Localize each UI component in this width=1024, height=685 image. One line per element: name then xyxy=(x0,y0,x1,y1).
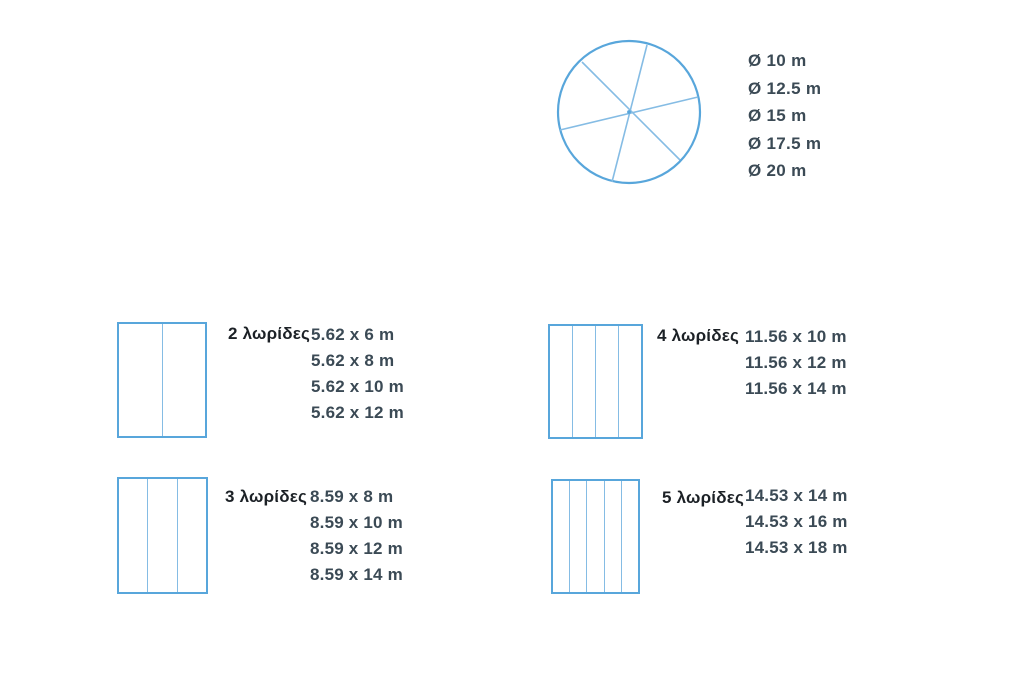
size-value: 8.59 x 14 m xyxy=(310,562,403,588)
strip-rectangle xyxy=(551,479,640,594)
strip-count-label: 5 λωρίδες xyxy=(662,488,744,508)
size-value: 8.59 x 12 m xyxy=(310,536,403,562)
strip-cell xyxy=(595,326,618,437)
strip-cell xyxy=(177,479,206,592)
strip-group-5: 5 λωρίδες 14.53 x 14 m14.53 x 16 m14.53 … xyxy=(551,479,640,594)
size-value: 5.62 x 12 m xyxy=(311,400,404,426)
strip-cell xyxy=(572,326,595,437)
diagram-canvas: Ø 10 mØ 12.5 mØ 15 mØ 17.5 mØ 20 m 2 λωρ… xyxy=(0,0,1024,685)
size-value: 8.59 x 10 m xyxy=(310,510,403,536)
diameter-value: Ø 17.5 m xyxy=(748,130,821,158)
diameter-value: Ø 10 m xyxy=(748,47,821,75)
strip-rectangle xyxy=(117,477,208,594)
strip-cell xyxy=(621,481,638,592)
size-list: 14.53 x 14 m14.53 x 16 m14.53 x 18 m xyxy=(745,483,848,561)
strip-count-label: 4 λωρίδες xyxy=(657,326,739,346)
strip-rectangle xyxy=(548,324,643,439)
strip-group-4: 4 λωρίδες 11.56 x 10 m11.56 x 12 m11.56 … xyxy=(548,324,643,439)
strip-cell xyxy=(569,481,586,592)
strip-cell xyxy=(553,481,569,592)
diameter-value: Ø 20 m xyxy=(748,157,821,185)
strip-count-label: 3 λωρίδες xyxy=(225,487,307,507)
size-value: 8.59 x 8 m xyxy=(310,484,403,510)
circle-chord xyxy=(582,62,680,160)
strip-cell xyxy=(586,481,603,592)
strip-count-label: 2 λωρίδες xyxy=(228,324,310,344)
strip-group-2: 2 λωρίδες 5.62 x 6 m5.62 x 8 m5.62 x 10 … xyxy=(117,322,207,438)
diameter-value: Ø 12.5 m xyxy=(748,75,821,103)
size-value: 14.53 x 14 m xyxy=(745,483,848,509)
size-value: 5.62 x 6 m xyxy=(311,322,404,348)
diameter-value: Ø 15 m xyxy=(748,102,821,130)
size-value: 14.53 x 18 m xyxy=(745,535,848,561)
size-value: 11.56 x 10 m xyxy=(745,324,847,350)
size-value: 11.56 x 12 m xyxy=(745,350,847,376)
size-list: 5.62 x 6 m5.62 x 8 m5.62 x 10 m5.62 x 12… xyxy=(311,322,404,426)
strip-cell xyxy=(119,479,147,592)
strip-cell xyxy=(618,326,641,437)
size-list: 8.59 x 8 m8.59 x 10 m8.59 x 12 m8.59 x 1… xyxy=(310,484,403,588)
size-list: 11.56 x 10 m11.56 x 12 m11.56 x 14 m xyxy=(745,324,847,402)
size-value: 5.62 x 8 m xyxy=(311,348,404,374)
size-value: 11.56 x 14 m xyxy=(745,376,847,402)
size-value: 14.53 x 16 m xyxy=(745,509,848,535)
strip-cell xyxy=(550,326,572,437)
strip-cell xyxy=(147,479,176,592)
strip-cell xyxy=(119,324,162,436)
strip-cell xyxy=(162,324,206,436)
diameter-list: Ø 10 mØ 12.5 mØ 15 mØ 17.5 mØ 20 m xyxy=(748,47,821,185)
strip-rectangle xyxy=(117,322,207,438)
size-value: 5.62 x 10 m xyxy=(311,374,404,400)
strip-group-3: 3 λωρίδες 8.59 x 8 m8.59 x 10 m8.59 x 12… xyxy=(117,477,208,594)
strip-cell xyxy=(604,481,621,592)
segmented-circle-diagram xyxy=(555,38,703,186)
circle-center-dot xyxy=(628,111,631,114)
